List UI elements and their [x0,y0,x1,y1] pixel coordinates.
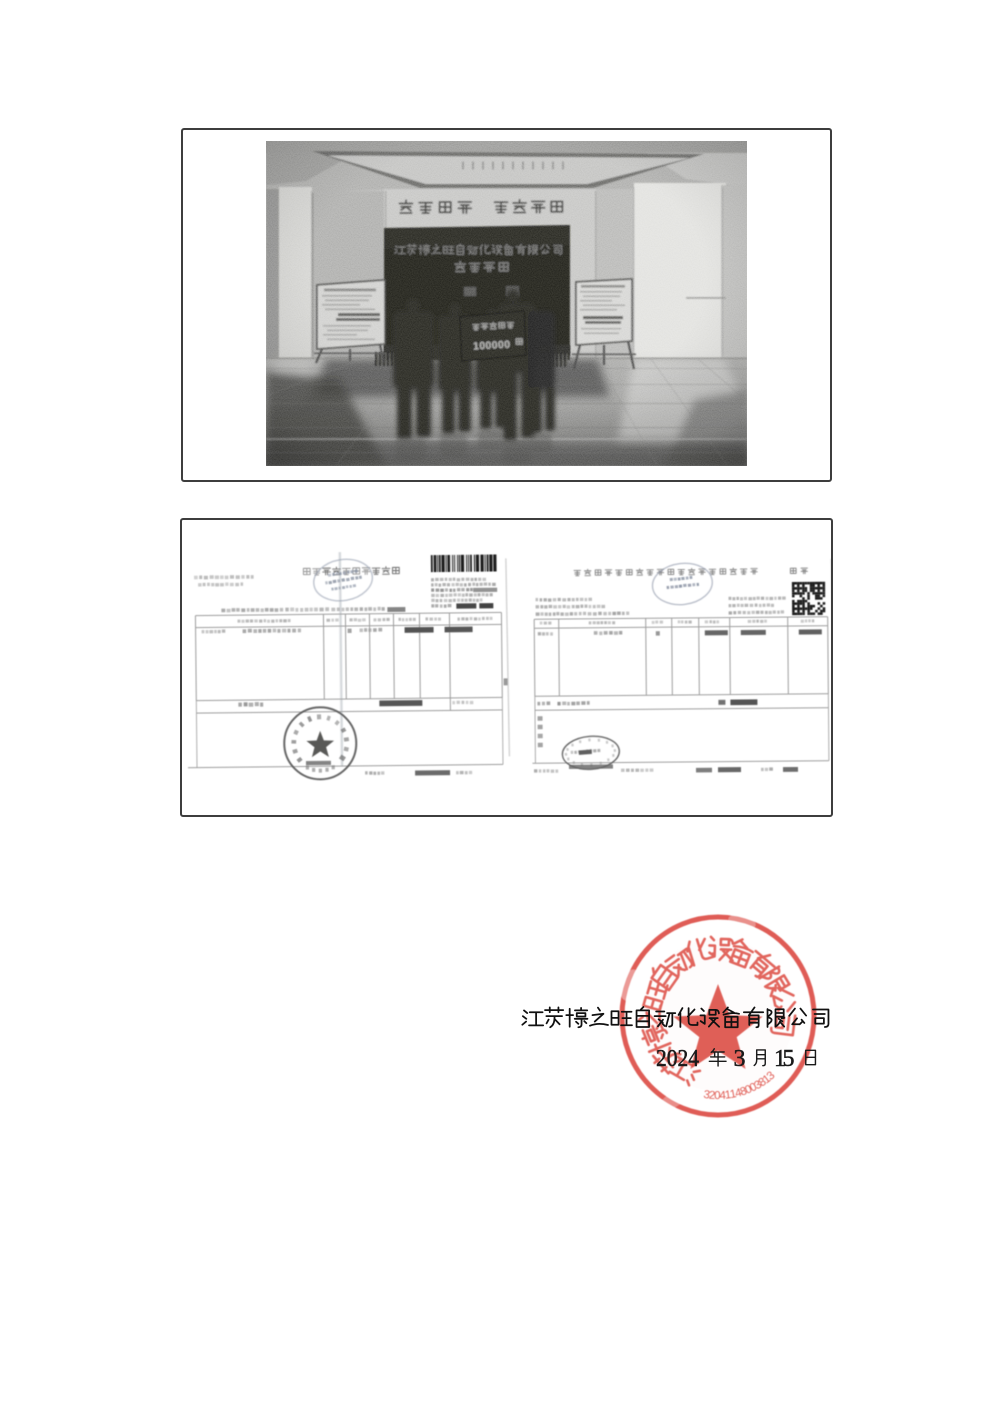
svg-text:3: 3 [734,1046,746,1072]
svg-text:15: 15 [774,1046,795,1072]
svg-text:2024: 2024 [656,1046,699,1072]
